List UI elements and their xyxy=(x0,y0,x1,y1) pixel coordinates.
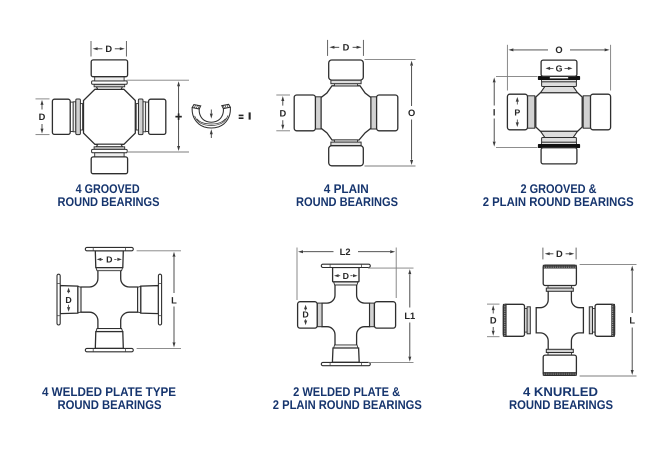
svg-text:I: I xyxy=(493,107,496,117)
svg-text:D: D xyxy=(279,108,286,118)
svg-text:2 PLAIN ROUND BEARINGS: 2 PLAIN ROUND BEARINGS xyxy=(483,195,634,209)
svg-text:D: D xyxy=(556,249,563,259)
svg-text:ROUND BEARINGS: ROUND BEARINGS xyxy=(296,195,398,209)
svg-text:P: P xyxy=(514,107,520,117)
svg-text:D: D xyxy=(490,316,497,326)
svg-text:O: O xyxy=(408,108,415,118)
svg-text:L: L xyxy=(629,316,635,326)
svg-text:D: D xyxy=(106,255,112,265)
svg-text:D: D xyxy=(39,112,46,122)
svg-text:L: L xyxy=(171,295,177,305)
svg-text:L2: L2 xyxy=(340,247,351,257)
svg-text:L1: L1 xyxy=(404,311,415,321)
svg-text:ROUND BEARINGS: ROUND BEARINGS xyxy=(58,398,162,412)
svg-text:D: D xyxy=(302,310,308,320)
svg-text:D: D xyxy=(343,43,350,53)
svg-text:ROUND BEARINGS: ROUND BEARINGS xyxy=(58,195,160,209)
svg-text:2 PLAIN ROUND BEARINGS: 2 PLAIN ROUND BEARINGS xyxy=(273,398,422,412)
svg-text:D: D xyxy=(105,44,112,54)
svg-text:G: G xyxy=(556,64,563,74)
svg-text:ROUND BEARINGS: ROUND BEARINGS xyxy=(509,398,613,412)
svg-text:D: D xyxy=(343,271,349,281)
svg-text:D: D xyxy=(65,295,71,305)
svg-text:O: O xyxy=(555,45,562,55)
